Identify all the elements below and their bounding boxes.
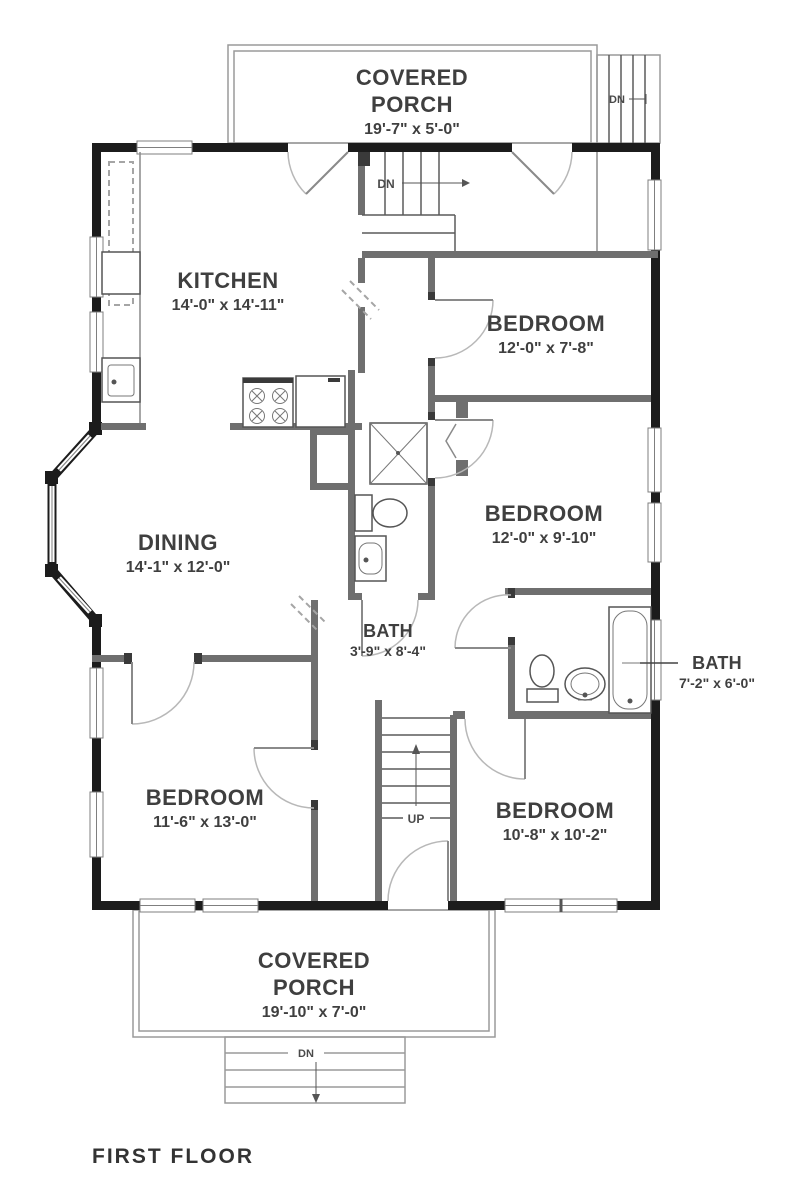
porch-top-steps	[597, 55, 660, 143]
door-bedroom-upper-right	[435, 300, 493, 358]
bath-center-dims: 3'-9" x 8'-4"	[350, 643, 426, 659]
porch-bottom-dims: 19'-10" x 7'-0"	[262, 1004, 367, 1021]
porch-top-label-line1: COVERED	[356, 65, 468, 90]
porch-top-label-line2: PORCH	[371, 92, 453, 117]
floor-plan-page: COVERED PORCH 19'-7" x 5'-0" DN DN KITCH…	[0, 0, 789, 1200]
bedroom-lower-left-dims: 11'-6" x 13'-0"	[153, 814, 257, 831]
porch-bottom-steps	[225, 1037, 405, 1103]
hall-stair-up	[382, 718, 450, 818]
floor-plan-drawing: COVERED PORCH 19'-7" x 5'-0" DN DN KITCH…	[0, 0, 789, 1200]
bedroom-lower-left-label: BEDROOM	[146, 785, 264, 810]
bath-right-label: BATH	[692, 653, 742, 673]
kitchen-label: KITCHEN	[177, 268, 278, 293]
dining-dims: 14'-1" x 12'-0"	[126, 559, 231, 576]
door-dining-bedroom	[132, 662, 194, 724]
bedroom-mid-right-label: BEDROOM	[485, 501, 603, 526]
porch-top-dn-label: DN	[609, 94, 625, 106]
door-bedroom-lower-right	[465, 719, 525, 779]
door-front	[388, 841, 448, 901]
stove	[243, 378, 293, 427]
dining-label: DINING	[138, 530, 218, 555]
dishwasher	[102, 252, 140, 294]
porch-bottom-dn-label: DN	[298, 1048, 314, 1060]
bedroom-mid-right-dims: 12'-0" x 9'-10"	[492, 530, 597, 547]
bedroom-lower-right-label: BEDROOM	[496, 798, 614, 823]
bath-center-label: BATH	[363, 621, 413, 641]
entry-dn-label: DN	[377, 177, 394, 191]
pedestal-sink	[565, 668, 605, 700]
bath-center-fixtures	[355, 423, 427, 581]
porch-bottom-label-line1: COVERED	[258, 948, 370, 973]
shower	[370, 423, 427, 484]
toilet-right	[527, 655, 558, 702]
porch-top-dims: 19'-7" x 5'-0"	[364, 121, 460, 138]
bay-window	[45, 422, 102, 627]
bathtub	[609, 607, 651, 713]
bedroom-upper-right-label: BEDROOM	[487, 311, 605, 336]
hall-up-label: UP	[408, 812, 425, 826]
bedroom-lower-right-dims: 10'-8" x 10'-2"	[503, 827, 608, 844]
door-kitchen-porch	[288, 152, 348, 194]
vanity-sink-center	[355, 536, 386, 581]
toilet-center	[355, 495, 407, 531]
door-entry-porch	[512, 152, 572, 194]
kitchen-dims: 14'-0" x 14'-11"	[172, 297, 285, 314]
bath-right-dims: 7'-2" x 6'-0"	[679, 675, 755, 691]
door-bath-right	[455, 595, 511, 648]
porch-bottom-label-line2: PORCH	[273, 975, 355, 1000]
entry-stair-dn	[362, 152, 597, 251]
closet-bifold-door	[446, 424, 456, 458]
kitchen-sink	[102, 358, 140, 402]
bedroom-upper-right-dims: 12'-0" x 7'-8"	[498, 340, 594, 357]
floor-title: FIRST FLOOR	[92, 1145, 254, 1168]
refrigerator	[296, 376, 345, 427]
